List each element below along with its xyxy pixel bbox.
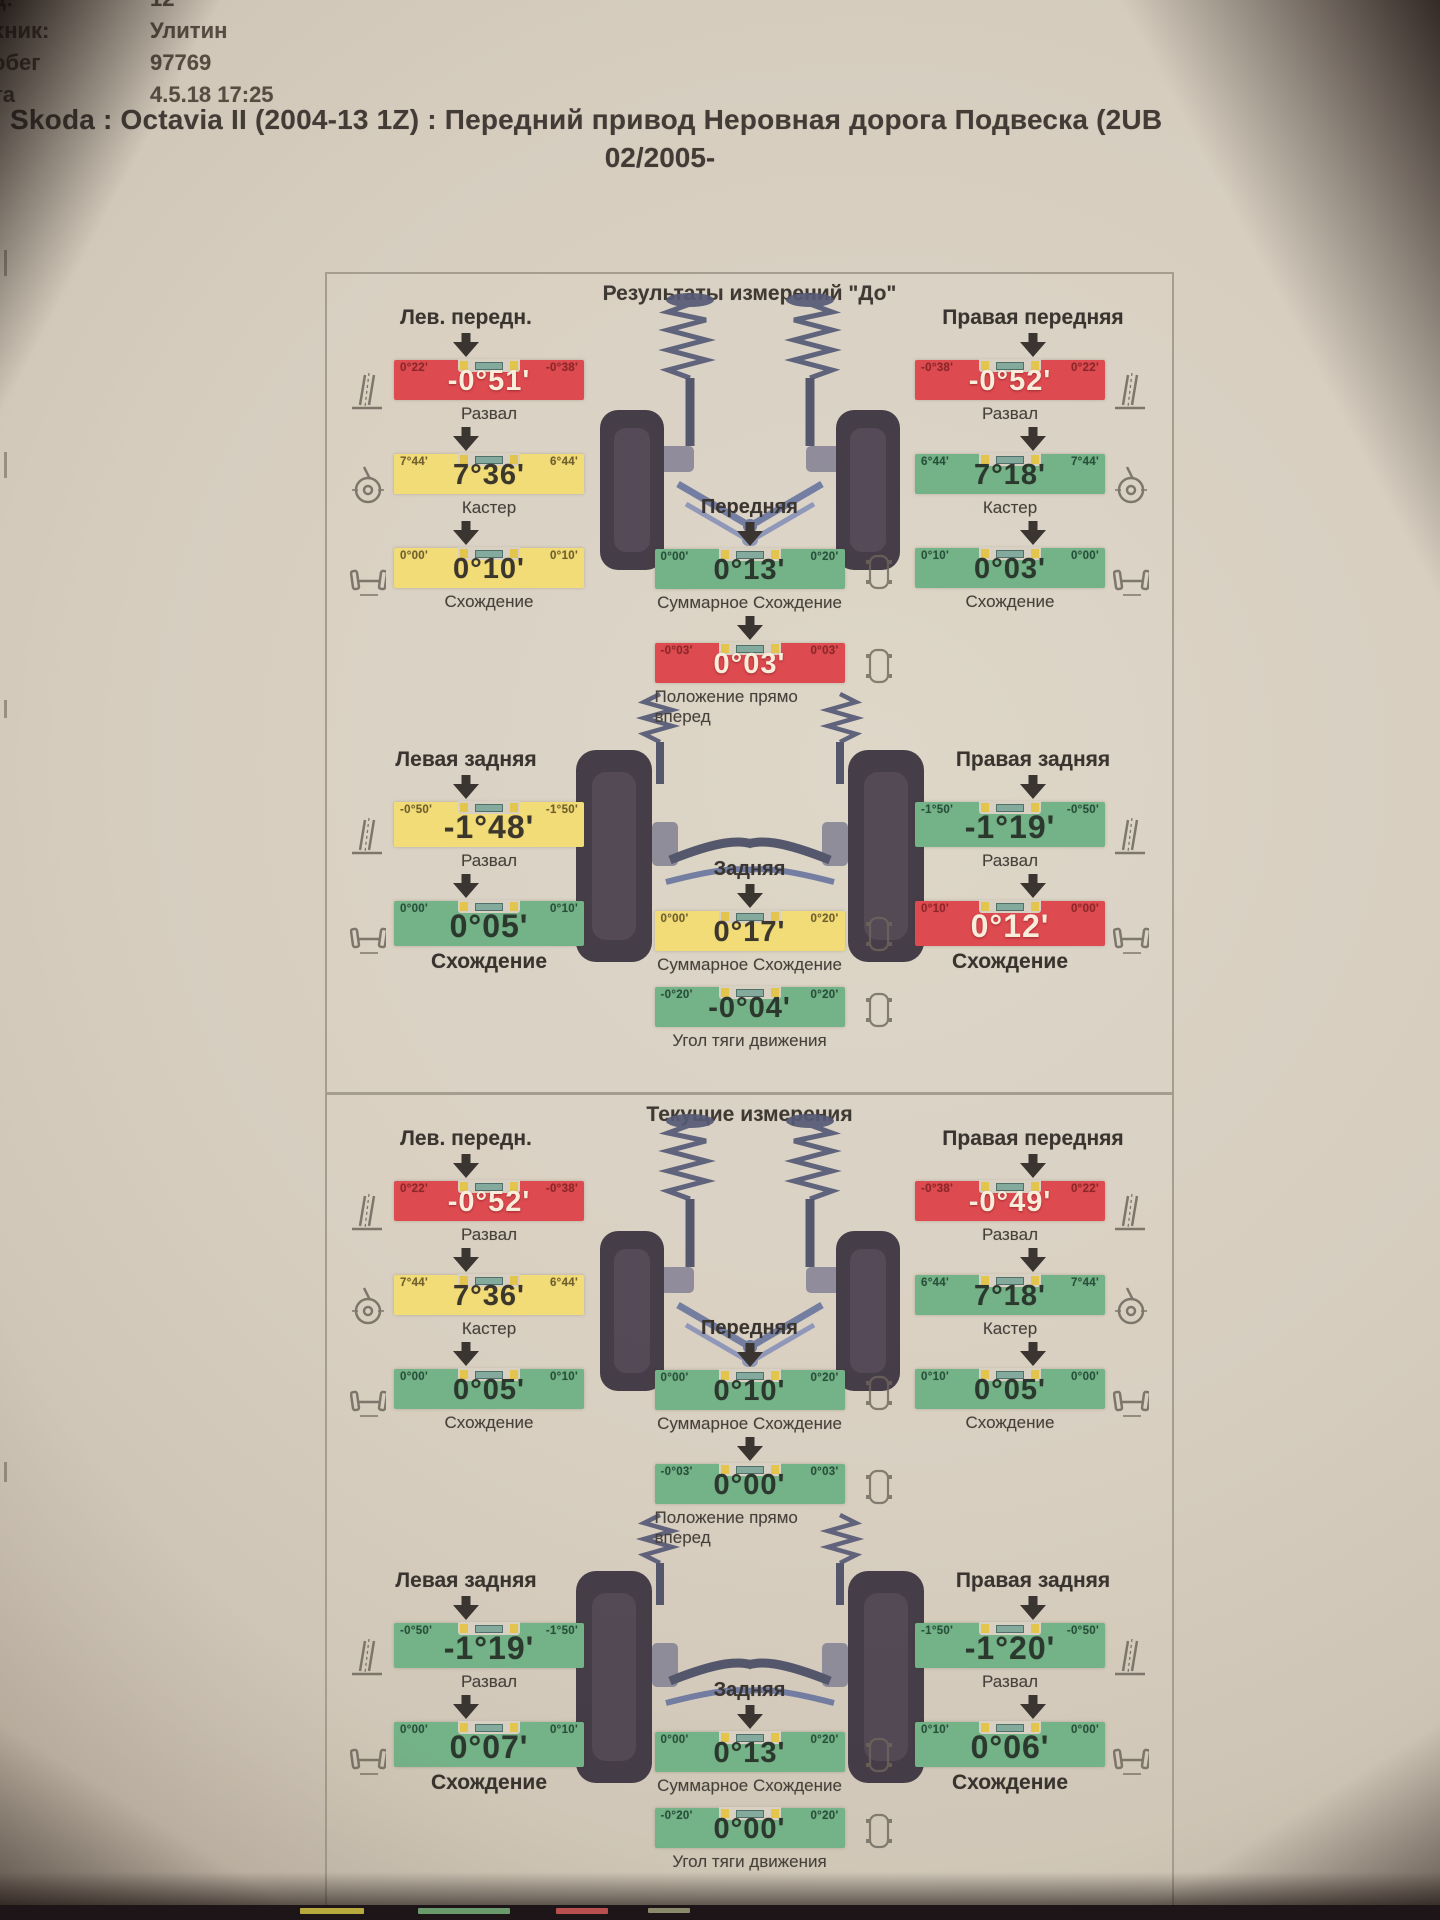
down-arrow-icon [1018, 1154, 1048, 1178]
gauge-caption: Развал [461, 851, 517, 871]
axle-label: Задняя [714, 858, 786, 881]
gauge-value: 0°10' [394, 553, 584, 586]
gauge-bar: -1°50'-0°50'-1°20' [915, 1623, 1105, 1668]
gauge-caption: Положение прямо вперед [655, 687, 845, 727]
toe-icon [1111, 1380, 1151, 1422]
car-top-icon [861, 1810, 897, 1857]
gauge-bar: -0°03'0°03'0°03' [655, 643, 845, 683]
caster-icon [348, 1286, 388, 1328]
down-arrow-icon [451, 874, 481, 898]
caster-icon [348, 465, 388, 507]
rear-left-wheel-section: Левая задняя -0°50'-1°50'-1°48'Развал 0°… [335, 748, 597, 974]
paper-edge-artifact [4, 700, 7, 718]
camber-icon [1111, 371, 1151, 413]
toe-icon [348, 559, 388, 601]
down-arrow-icon [735, 616, 765, 640]
down-arrow-icon [735, 884, 765, 908]
photographed-alignment-report: д: 12 хник: Улитин обег 97769 та 4.5.18 … [0, 0, 1440, 1920]
gauge-bar: 0°22'-0°38'-0°52' [394, 1181, 584, 1221]
meta-value: Улитин [150, 18, 274, 50]
camber-icon [348, 371, 388, 413]
car-top-icon [861, 989, 897, 1036]
gauge-caption: Развал [982, 851, 1038, 871]
gauge-caption: Схождение [431, 950, 547, 974]
gauge-caption: Суммарное Схождение [657, 1776, 842, 1796]
gauge-caster: 6°44'7°44'7°18'Кастер [915, 1275, 1105, 1339]
model-year-line: 02/2005- [10, 142, 1310, 174]
gauge-value: 7°18' [915, 1280, 1105, 1313]
caster-icon [1111, 1286, 1151, 1328]
gauge-caption: Схождение [952, 1771, 1068, 1795]
down-arrow-icon [451, 775, 481, 799]
paper-edge-artifact [4, 250, 7, 276]
gauge-value: 0°03' [915, 553, 1105, 586]
car-top-icon [861, 913, 897, 960]
gauge-toe: 0°00'0°10'0°07'Схождение [394, 1722, 584, 1795]
gauge-toe: 0°00'0°10'0°05'Схождение [394, 901, 584, 974]
gauge-bar: 7°44'6°44'7°36' [394, 454, 584, 494]
gauge-value: 0°13' [655, 554, 845, 587]
report-meta: д: 12 хник: Улитин обег 97769 та 4.5.18 … [0, 0, 274, 114]
paper-edge-artifact [4, 452, 7, 478]
gauge-value: 0°03' [655, 648, 845, 681]
wheel-header: Правая передняя [942, 1127, 1123, 1151]
gauge-toe: 0°10'0°00'0°05'Схождение [915, 1369, 1105, 1433]
down-arrow-icon [735, 1437, 765, 1461]
panel-measurements-current: Текущие измерения Лев. передн. 0°22'-0°3… [325, 1093, 1174, 1915]
gauge-bar: -0°38'0°22'-0°52' [915, 360, 1105, 400]
gauge-toe: 0°00'0°10'0°05'Схождение [394, 1369, 584, 1433]
gauge-bar: 0°10'0°00'0°06' [915, 1722, 1105, 1767]
gauge-total-toe: 0°00'0°20'0°17'Суммарное Схождение [655, 911, 845, 975]
gauge-caption: Суммарное Схождение [657, 593, 842, 613]
axle-label: Передняя [701, 1317, 798, 1340]
rear-left-wheel-section: Левая задняя -0°50'-1°50'-1°19'Развал 0°… [335, 1569, 597, 1795]
gauge-caption: Угол тяги движения [672, 1852, 826, 1872]
cropped-content-sliver [418, 1908, 510, 1914]
gauge-value: -0°49' [915, 1186, 1105, 1219]
gauge-toe: 0°10'0°00'0°03'Схождение [915, 548, 1105, 612]
car-top-icon [861, 1466, 897, 1513]
wheel-header: Лев. передн. [400, 1127, 532, 1151]
gauge-caster: 6°44'7°44'7°18'Кастер [915, 454, 1105, 518]
down-arrow-icon [1018, 874, 1048, 898]
gauge-bar: -0°20'0°20'-0°04' [655, 987, 845, 1027]
gauge-value: -1°48' [394, 809, 584, 846]
gauge-camber: 0°22'-0°38'-0°52'Развал [394, 1181, 584, 1245]
gauge-bar: 0°00'0°10'0°05' [394, 901, 584, 946]
camber-icon [348, 816, 388, 858]
gauge-caption: Суммарное Схождение [657, 955, 842, 975]
gauge-bar: 0°00'0°20'0°13' [655, 1732, 845, 1772]
down-arrow-icon [1018, 333, 1048, 357]
down-arrow-icon [1018, 521, 1048, 545]
down-arrow-icon [735, 522, 765, 546]
gauge-value: -1°19' [915, 809, 1105, 846]
caster-icon [1111, 465, 1151, 507]
gauge-caption: Схождение [431, 1771, 547, 1795]
car-top-icon [861, 1372, 897, 1419]
meta-value: 97769 [150, 50, 274, 82]
rear-right-wheel-section: Правая задняя -1°50'-0°50'-1°19'Развал 0… [902, 748, 1164, 974]
gauge-value: 7°36' [394, 459, 584, 492]
gauge-bar: 0°10'0°00'0°12' [915, 901, 1105, 946]
gauge-bar: 0°00'0°10'0°07' [394, 1722, 584, 1767]
down-arrow-icon [735, 1343, 765, 1367]
gauge-bar: 0°22'-0°38'-0°51' [394, 360, 584, 400]
meta-label: хник: [0, 18, 142, 50]
car-top-icon [861, 645, 897, 692]
down-arrow-icon [1018, 1342, 1048, 1366]
gauge-value: 0°05' [394, 908, 584, 945]
gauge-caption: Схождение [445, 1413, 534, 1433]
gauge-bar: -0°50'-1°50'-1°48' [394, 802, 584, 847]
front-right-wheel-section: Правая передняя -0°38'0°22'-0°49'Развал … [902, 1127, 1164, 1433]
front-right-wheel-section: Правая передняя -0°38'0°22'-0°52'Развал … [902, 306, 1164, 612]
gauge-bar: 7°44'6°44'7°36' [394, 1275, 584, 1315]
gauge-toe: 0°00'0°10'0°10'Схождение [394, 548, 584, 612]
gauge-caption: Кастер [462, 1319, 516, 1339]
gauge-value: -1°20' [915, 1630, 1105, 1667]
down-arrow-icon [451, 1248, 481, 1272]
gauge-bar: 0°00'0°10'0°10' [394, 548, 584, 588]
down-arrow-icon [451, 1695, 481, 1719]
meta-label: обег [0, 50, 142, 82]
axle-label: Передняя [701, 496, 798, 519]
toe-icon [1111, 559, 1151, 601]
gauge-toe: 0°10'0°00'0°06'Схождение [915, 1722, 1105, 1795]
meta-value: 12 [150, 0, 274, 18]
down-arrow-icon [1018, 1248, 1048, 1272]
gauge-total-toe: 0°00'0°20'0°13'Суммарное Схождение [655, 549, 845, 613]
gauge-bar: -0°20'0°20'0°00' [655, 1808, 845, 1848]
gauge-camber: -0°50'-1°50'-1°19'Развал [394, 1623, 584, 1692]
cropped-content-sliver [300, 1908, 364, 1914]
gauge-bar: 0°00'0°20'0°13' [655, 549, 845, 589]
toe-icon [348, 1380, 388, 1422]
gauge-caption: Схождение [952, 950, 1068, 974]
gauge-caption: Развал [982, 1225, 1038, 1245]
gauge-bar: 0°00'0°20'0°10' [655, 1370, 845, 1410]
gauge-caption: Развал [461, 404, 517, 424]
wheel-header: Лев. передн. [400, 306, 532, 330]
meta-row: хник: Улитин [0, 18, 274, 50]
wheel-header: Правая задняя [956, 748, 1110, 772]
front-left-wheel-section: Лев. передн. 0°22'-0°38'-0°51'Развал 7°4… [335, 306, 597, 612]
gauge-value: 0°13' [655, 1737, 845, 1770]
gauge-value: 0°05' [915, 1374, 1105, 1407]
gauge-caption: Кастер [462, 498, 516, 518]
gauge-value: -0°51' [394, 365, 584, 398]
vehicle-title-line: Skoda : Octavia II (2004-13 1Z) : Передн… [10, 104, 1436, 136]
car-top-icon [861, 1734, 897, 1781]
axle-label: Задняя [714, 1679, 786, 1702]
wheel-header: Правая передняя [942, 306, 1123, 330]
down-arrow-icon [1018, 427, 1048, 451]
toe-icon [348, 1738, 388, 1780]
gauge-value: 7°18' [915, 459, 1105, 492]
gauge-camber: -0°38'0°22'-0°52'Развал [915, 360, 1105, 424]
gauge-camber: -0°50'-1°50'-1°48'Развал [394, 802, 584, 871]
gauge-value: 0°00' [655, 1813, 845, 1846]
gauge-value: 7°36' [394, 1280, 584, 1313]
gauge-caption: Положение прямо вперед [655, 1508, 845, 1548]
paper-sheet: д: 12 хник: Улитин обег 97769 та 4.5.18 … [0, 0, 1440, 1920]
gauge-value: -1°19' [394, 1630, 584, 1667]
gauge-value: 0°05' [394, 1374, 584, 1407]
gauge-caption: Развал [982, 404, 1038, 424]
paper-edge-artifact [4, 1462, 7, 1482]
gauge-bar: -0°50'-1°50'-1°19' [394, 1623, 584, 1668]
down-arrow-icon [451, 1596, 481, 1620]
gauge-camber: 0°22'-0°38'-0°51'Развал [394, 360, 584, 424]
gauge-value: 0°12' [915, 908, 1105, 945]
meta-row: д: 12 [0, 0, 274, 18]
gauge-straight-ahead: -0°03'0°03'0°00'Положение прямо вперед [655, 1464, 845, 1548]
panel-measurements-before: Результаты измерений "До" Лев. передн. 0… [325, 272, 1174, 1094]
cropped-content-sliver [648, 1908, 690, 1913]
gauge-camber: -1°50'-0°50'-1°20'Развал [915, 1623, 1105, 1692]
down-arrow-icon [451, 1342, 481, 1366]
gauge-bar: 0°10'0°00'0°03' [915, 548, 1105, 588]
document-title: Skoda : Octavia II (2004-13 1Z) : Передн… [10, 104, 1436, 174]
down-arrow-icon [735, 1705, 765, 1729]
gauge-value: 0°07' [394, 1729, 584, 1766]
down-arrow-icon [451, 333, 481, 357]
gauge-value: 0°10' [655, 1375, 845, 1408]
gauge-caption: Схождение [966, 1413, 1055, 1433]
gauge-bar: -0°03'0°03'0°00' [655, 1464, 845, 1504]
gauge-bar: 6°44'7°44'7°18' [915, 454, 1105, 494]
gauge-value: -0°04' [655, 992, 845, 1025]
gauge-caption: Схождение [966, 592, 1055, 612]
down-arrow-icon [451, 427, 481, 451]
gauge-total-toe: 0°00'0°20'0°10'Суммарное Схождение [655, 1370, 845, 1434]
gauge-value: -0°52' [915, 365, 1105, 398]
gauge-value: 0°06' [915, 1729, 1105, 1766]
gauge-caption: Суммарное Схождение [657, 1414, 842, 1434]
wheel-header: Правая задняя [956, 1569, 1110, 1593]
camber-icon [1111, 816, 1151, 858]
front-left-wheel-section: Лев. передн. 0°22'-0°38'-0°52'Развал 7°4… [335, 1127, 597, 1433]
front-axle-section: Передняя 0°00'0°20'0°10'Суммарное Схожде… [625, 1317, 875, 1548]
down-arrow-icon [1018, 1596, 1048, 1620]
gauge-value: 0°17' [655, 916, 845, 949]
down-arrow-icon [1018, 775, 1048, 799]
gauge-caption: Развал [982, 1672, 1038, 1692]
gauge-caption: Кастер [983, 498, 1037, 518]
meta-row: обег 97769 [0, 50, 274, 82]
gauge-thrust-angle: -0°20'0°20'0°00'Угол тяги движения [655, 1808, 845, 1872]
meta-label: д: [0, 0, 142, 18]
rear-axle-section: Задняя 0°00'0°20'0°17'Суммарное Схождени… [625, 858, 875, 1051]
gauge-caption: Угол тяги движения [672, 1031, 826, 1051]
camber-icon [348, 1192, 388, 1234]
gauge-bar: 6°44'7°44'7°18' [915, 1275, 1105, 1315]
gauge-caster: 7°44'6°44'7°36'Кастер [394, 1275, 584, 1339]
camber-icon [348, 1637, 388, 1679]
photo-bottom-edge [0, 1905, 1440, 1920]
gauge-bar: 0°00'0°20'0°17' [655, 911, 845, 951]
toe-icon [1111, 917, 1151, 959]
gauge-camber: -1°50'-0°50'-1°19'Развал [915, 802, 1105, 871]
gauge-toe: 0°10'0°00'0°12'Схождение [915, 901, 1105, 974]
gauge-bar: -0°38'0°22'-0°49' [915, 1181, 1105, 1221]
wheel-header: Левая задняя [395, 1569, 536, 1593]
toe-icon [348, 917, 388, 959]
gauge-camber: -0°38'0°22'-0°49'Развал [915, 1181, 1105, 1245]
camber-icon [1111, 1192, 1151, 1234]
gauge-caption: Развал [461, 1225, 517, 1245]
rear-axle-section: Задняя 0°00'0°20'0°13'Суммарное Схождени… [625, 1679, 875, 1872]
gauge-bar: 0°10'0°00'0°05' [915, 1369, 1105, 1409]
camber-icon [1111, 1637, 1151, 1679]
gauge-straight-ahead: -0°03'0°03'0°03'Положение прямо вперед [655, 643, 845, 727]
front-axle-section: Передняя 0°00'0°20'0°13'Суммарное Схожде… [625, 496, 875, 727]
gauge-caption: Кастер [983, 1319, 1037, 1339]
toe-icon [1111, 1738, 1151, 1780]
gauge-caption: Развал [461, 1672, 517, 1692]
gauge-caster: 7°44'6°44'7°36'Кастер [394, 454, 584, 518]
down-arrow-icon [1018, 1695, 1048, 1719]
down-arrow-icon [451, 521, 481, 545]
gauge-bar: -1°50'-0°50'-1°19' [915, 802, 1105, 847]
gauge-caption: Схождение [445, 592, 534, 612]
down-arrow-icon [451, 1154, 481, 1178]
gauge-bar: 0°00'0°10'0°05' [394, 1369, 584, 1409]
rear-right-wheel-section: Правая задняя -1°50'-0°50'-1°20'Развал 0… [902, 1569, 1164, 1795]
gauge-thrust-angle: -0°20'0°20'-0°04'Угол тяги движения [655, 987, 845, 1051]
car-top-icon [861, 551, 897, 598]
gauge-value: -0°52' [394, 1186, 584, 1219]
gauge-value: 0°00' [655, 1469, 845, 1502]
wheel-header: Левая задняя [395, 748, 536, 772]
gauge-total-toe: 0°00'0°20'0°13'Суммарное Схождение [655, 1732, 845, 1796]
cropped-content-sliver [556, 1908, 608, 1914]
